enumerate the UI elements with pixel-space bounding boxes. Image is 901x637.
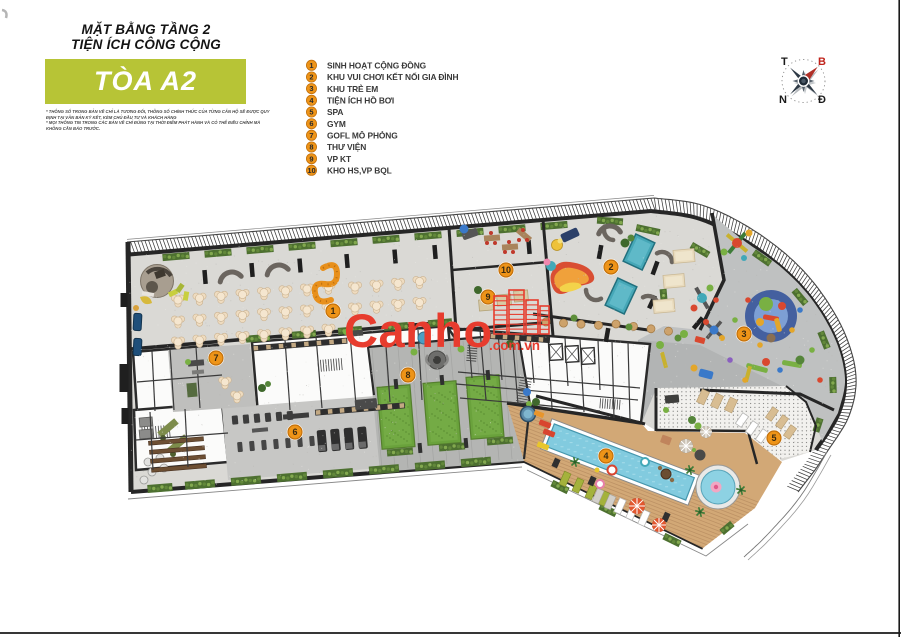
- svg-text:KHU TRẺ EM: KHU TRẺ EM: [327, 83, 378, 94]
- svg-text:3: 3: [741, 329, 746, 339]
- svg-text:N: N: [779, 94, 787, 106]
- svg-text:1: 1: [309, 61, 313, 70]
- svg-text:8: 8: [405, 370, 410, 380]
- svg-text:3: 3: [309, 84, 313, 93]
- svg-text:4: 4: [603, 451, 608, 461]
- svg-text:5: 5: [771, 433, 776, 443]
- svg-text:TIỆN ÍCH HỒ BƠI: TIỆN ÍCH HỒ BƠI: [327, 95, 394, 106]
- svg-text:Canho: Canho: [344, 304, 493, 357]
- svg-text:.com.vn: .com.vn: [489, 338, 540, 353]
- svg-text:THƯ VIỆN: THƯ VIỆN: [327, 141, 366, 152]
- svg-text:VP KT: VP KT: [327, 154, 352, 164]
- svg-text:9: 9: [309, 154, 313, 163]
- svg-text:9: 9: [485, 292, 490, 302]
- svg-text:7: 7: [213, 353, 218, 363]
- svg-text:10: 10: [501, 265, 511, 275]
- svg-text:KHU VUI CHƠI KẾT NỐI GIA ĐÌNH: KHU VUI CHƠI KẾT NỐI GIA ĐÌNH: [327, 71, 458, 82]
- svg-text:Đ: Đ: [818, 94, 826, 106]
- svg-text:1: 1: [330, 306, 335, 316]
- svg-text:SPA: SPA: [327, 107, 343, 117]
- svg-text:2: 2: [608, 262, 613, 272]
- svg-text:T: T: [781, 56, 788, 68]
- svg-text:7: 7: [309, 131, 313, 140]
- svg-text:GOFL MÔ PHỎNG: GOFL MÔ PHỎNG: [327, 130, 398, 141]
- svg-text:KHO HS,VP BQL: KHO HS,VP BQL: [327, 166, 392, 176]
- svg-text:2: 2: [309, 73, 313, 82]
- svg-text:GYM: GYM: [327, 119, 346, 129]
- svg-text:B: B: [818, 56, 826, 68]
- svg-text:8: 8: [309, 143, 313, 152]
- svg-text:SINH HOẠT CỘNG ĐỒNG: SINH HOẠT CỘNG ĐỒNG: [327, 60, 426, 71]
- svg-text:5: 5: [309, 108, 313, 117]
- svg-text:10: 10: [307, 166, 315, 175]
- svg-text:6: 6: [292, 427, 297, 437]
- svg-text:6: 6: [309, 119, 313, 128]
